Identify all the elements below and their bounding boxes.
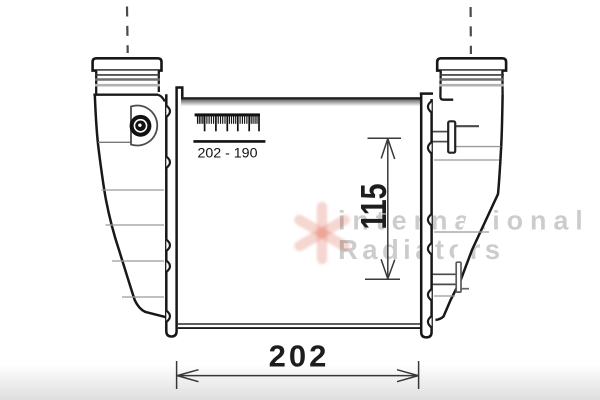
svg-text:202 - 190: 202 - 190 [198,145,258,161]
svg-text:115: 115 [353,184,394,230]
